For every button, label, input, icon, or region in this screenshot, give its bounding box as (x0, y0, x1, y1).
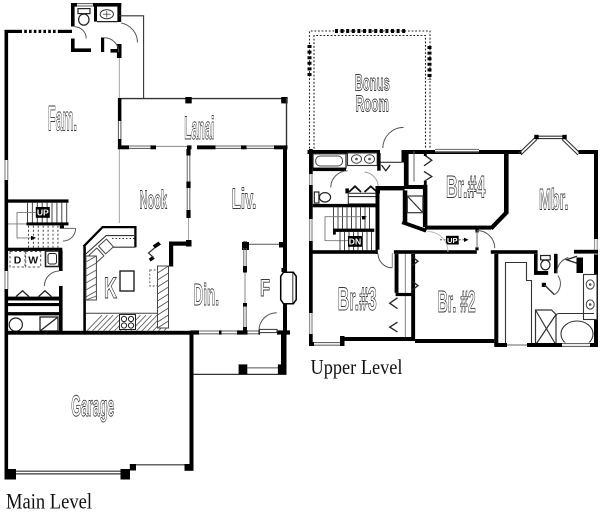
svg-text:Garage: Garage (71, 390, 114, 423)
svg-text:Liv.: Liv. (232, 184, 257, 216)
svg-text:F: F (260, 275, 270, 302)
svg-text:Room: Room (355, 91, 389, 117)
svg-text:K: K (104, 272, 117, 305)
svg-text:Upper Level: Upper Level (311, 355, 403, 379)
svg-text:UP: UP (37, 208, 49, 218)
svg-text:DN: DN (349, 237, 361, 247)
svg-text:UP: UP (447, 236, 458, 245)
svg-text:Br. #2: Br. #2 (438, 284, 476, 319)
svg-text:Br.#3: Br.#3 (338, 281, 377, 317)
svg-text:Lanai: Lanai (184, 110, 214, 146)
svg-text:Mbr.: Mbr. (539, 184, 569, 217)
svg-text:Din.: Din. (194, 277, 220, 312)
svg-text:Br.#4: Br.#4 (446, 169, 486, 205)
svg-text:Fam.: Fam. (48, 100, 77, 139)
svg-text:Main Level: Main Level (6, 489, 92, 512)
svg-text:D: D (14, 255, 22, 267)
svg-text:W: W (28, 255, 38, 267)
svg-text:Nook: Nook (140, 184, 168, 214)
